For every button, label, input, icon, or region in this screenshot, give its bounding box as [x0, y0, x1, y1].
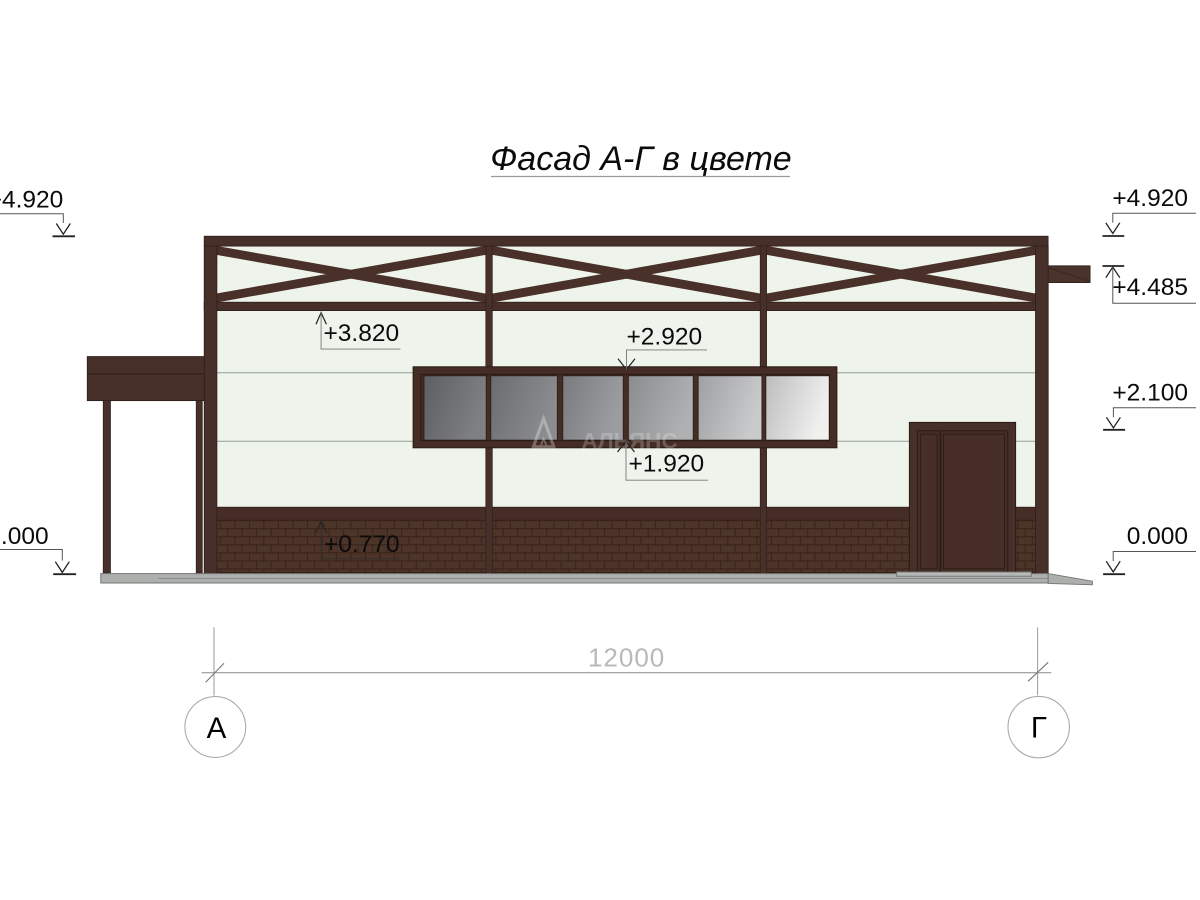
svg-text:+4.920: +4.920 — [1112, 185, 1188, 212]
svg-text:+2.920: +2.920 — [627, 324, 703, 351]
svg-text:0.000: 0.000 — [0, 523, 49, 550]
svg-text:+3.820: +3.820 — [324, 320, 400, 347]
svg-text:+0.770: +0.770 — [324, 531, 400, 558]
svg-text:12000: 12000 — [588, 642, 665, 672]
svg-text:0.000: 0.000 — [1127, 523, 1188, 550]
svg-text:Г: Г — [1031, 712, 1047, 745]
svg-text:+1.920: +1.920 — [629, 451, 705, 478]
svg-text:+4.920: +4.920 — [0, 187, 63, 214]
svg-text:+4.485: +4.485 — [1112, 274, 1188, 301]
svg-text:А: А — [207, 712, 227, 745]
svg-text:+2.100: +2.100 — [1112, 380, 1188, 407]
svg-text:Фасад А-Г в цвете: Фасад А-Г в цвете — [490, 140, 791, 178]
